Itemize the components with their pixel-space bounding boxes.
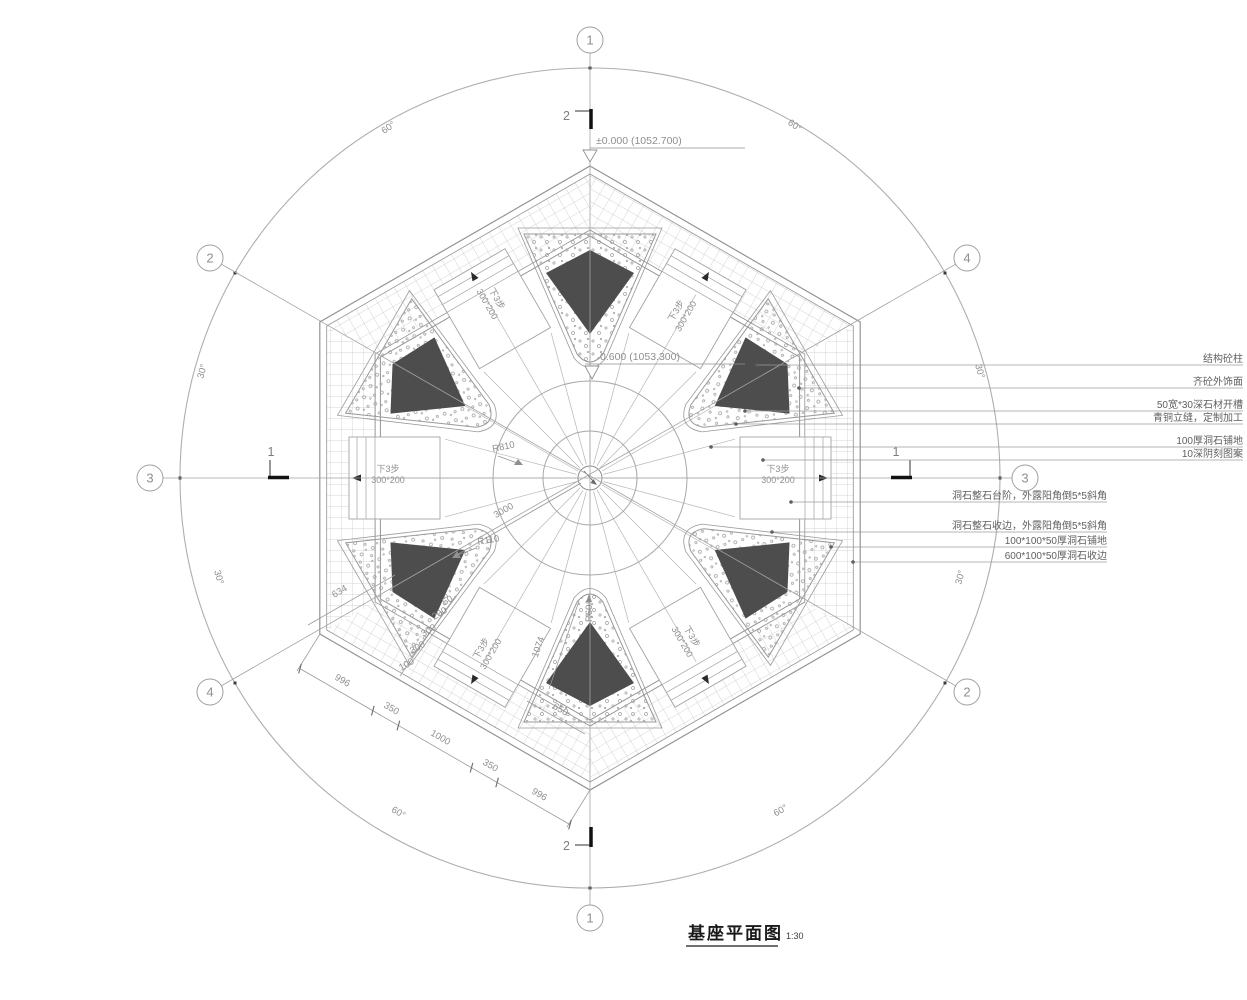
- angle-top-right: 60°: [785, 117, 803, 134]
- bubble-bottom-left: 4: [206, 685, 213, 700]
- anno-travertine-paving-100: 100厚洞石铺地: [1176, 434, 1243, 447]
- angle-top-left: 60°: [380, 119, 398, 136]
- anno-stone-groove: 50宽*30深石材开槽: [1157, 398, 1243, 411]
- bubble-left: 3: [146, 471, 153, 486]
- dim-996b: 996: [530, 786, 549, 803]
- r60-label: R60: [584, 605, 595, 622]
- cad-sheet: 下3步 300*200 下3步 300*200: [0, 0, 1247, 1000]
- base-plan-drawing: 下3步 300*200 下3步 300*200: [0, 0, 1247, 1000]
- angle-bottom-right: 60°: [772, 802, 790, 819]
- section-top-number: 2: [563, 109, 570, 123]
- section-mark-bottom: 2: [563, 827, 591, 853]
- anno-paver-100x100x50: 100*100*50厚洞石铺地: [1005, 534, 1107, 547]
- r810-label: R810: [491, 439, 516, 454]
- section-mark-right: 1: [891, 445, 912, 478]
- section-left-number: 1: [268, 445, 275, 459]
- centre-arrow: [591, 479, 598, 485]
- bubble-bottom: 1: [586, 911, 593, 926]
- bubble-right: 3: [1021, 471, 1028, 486]
- bubble-bottom-right: 2: [963, 685, 970, 700]
- dim-350b: 350: [481, 757, 500, 774]
- angle-lower-left: 30°: [211, 569, 225, 586]
- drawing-scale: 1:30: [786, 931, 804, 941]
- anno-structural-column: 结构砼柱: [1203, 352, 1243, 365]
- anno-stone-edging: 洞石整石收边，外露阳角倒5*5斜角: [952, 519, 1107, 532]
- title-block: 基座平面图 1:30: [686, 923, 804, 946]
- dim-996a: 996: [333, 672, 352, 689]
- section-mark-left: 1: [268, 445, 289, 478]
- anno-stone-steps: 洞石整石台阶，外露阳角倒5*5斜角: [952, 489, 1107, 502]
- anno-concrete-finish: 齐砼外饰面: [1193, 375, 1243, 388]
- anno-bronze-seam: 青铜立缝，定制加工: [1153, 411, 1243, 424]
- section-mark-top: 2: [563, 109, 591, 129]
- elevation-marker-outer: ±0.000 (1052.700): [583, 135, 745, 162]
- elevation-inner-text: 0.600 (1053.300): [600, 351, 680, 363]
- angle-bottom-left: 60°: [389, 804, 407, 821]
- section-bottom-number: 2: [563, 839, 570, 853]
- bubble-top-left: 2: [206, 251, 213, 266]
- drawing-title: 基座平面图: [687, 923, 783, 943]
- anno-engraved-pattern: 10深阴刻图案: [1182, 447, 1243, 460]
- dim-3000: 3000: [492, 501, 516, 521]
- bubble-top-right: 4: [963, 251, 970, 266]
- anno-edge-600x100x50: 600*100*50厚洞石收边: [1005, 549, 1107, 562]
- angle-lower-right: 30°: [953, 569, 967, 586]
- angle-upper-left: 30°: [195, 363, 209, 380]
- dim-350a: 350: [382, 700, 401, 717]
- bubble-top: 1: [586, 33, 593, 48]
- elevation-outer-text: ±0.000 (1052.700): [596, 135, 682, 147]
- angle-upper-right: 30°: [972, 363, 986, 380]
